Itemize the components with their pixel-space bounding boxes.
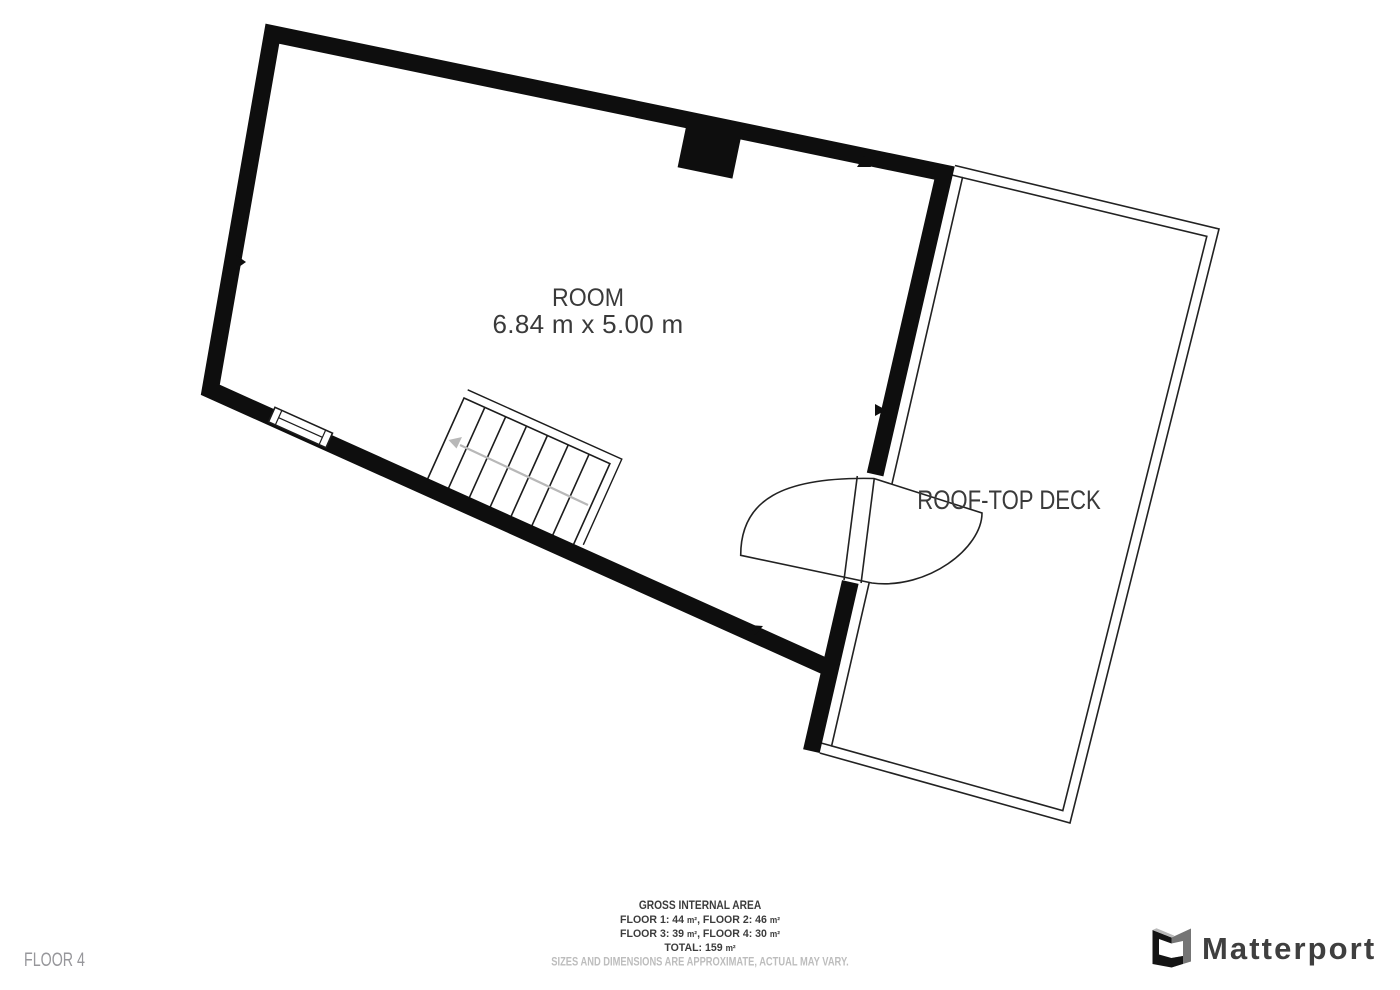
svg-text:FLOOR 3: 39 m², FLOOR 4: 30 m²: FLOOR 3: 39 m², FLOOR 4: 30 m² — [620, 928, 780, 940]
svg-text:ROOF-TOP DECK: ROOF-TOP DECK — [917, 486, 1101, 516]
svg-text:6.84 m x 5.00 m: 6.84 m x 5.00 m — [493, 309, 684, 339]
svg-text:SIZES AND DIMENSIONS ARE APPRO: SIZES AND DIMENSIONS ARE APPROXIMATE, AC… — [551, 957, 849, 969]
svg-text:GROSS INTERNAL AREA: GROSS INTERNAL AREA — [639, 899, 762, 912]
svg-text:FLOOR 4: FLOOR 4 — [24, 949, 85, 970]
svg-text:TOTAL: 159 m²: TOTAL: 159 m² — [664, 942, 735, 954]
svg-text:FLOOR 1: 44 m², FLOOR 2: 46 m²: FLOOR 1: 44 m², FLOOR 2: 46 m² — [620, 914, 780, 926]
svg-text:Matterport: Matterport — [1202, 931, 1376, 966]
